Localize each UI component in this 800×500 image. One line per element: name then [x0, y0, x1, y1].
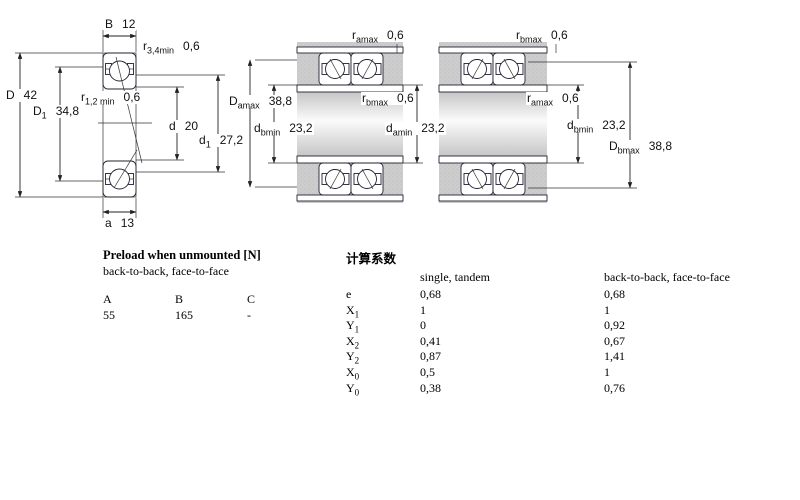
dim-label-rbmax: rbmax0,6: [361, 92, 415, 105]
factor-symbol: e: [346, 287, 351, 301]
factor-pair-value: 1,41: [604, 349, 625, 364]
dim-label-d: d20: [168, 120, 199, 133]
preload-col-header-B: B: [175, 292, 183, 307]
bearing-pair-top: [461, 53, 525, 85]
ball: [468, 60, 487, 79]
ball: [326, 60, 345, 79]
factor-row-X1: X1 1 1: [346, 303, 800, 319]
ball: [500, 170, 519, 189]
dim-label-a: a13: [104, 217, 135, 230]
calculation-factors-table: 计算系数 single, tandem back-to-back, face-t…: [346, 248, 796, 408]
factors-col-header-pair: back-to-back, face-to-face: [604, 270, 730, 285]
factor-symbol: X1: [346, 303, 359, 317]
factor-row-Y0: Y0 0,38 0,76: [346, 381, 800, 397]
factor-pair-value: 0,76: [604, 381, 625, 396]
preload-col-header-A: A: [103, 292, 112, 307]
factor-single-value: 0,41: [420, 334, 441, 349]
preload-value-C: -: [247, 308, 251, 323]
factor-pair-value: 1: [604, 303, 610, 318]
dim-label-d1: d127,2: [198, 134, 244, 147]
factor-single-value: 0,68: [420, 287, 441, 302]
factor-pair-value: 0,92: [604, 318, 625, 333]
factor-single-value: 0: [420, 318, 426, 333]
factor-pair-value: 0,67: [604, 334, 625, 349]
dim-label-D1: D134,8: [32, 105, 80, 118]
dim-label-damin: damin23,2: [385, 122, 446, 135]
factor-row-Y1: Y1 0 0,92: [346, 318, 800, 334]
dim-label-Damax: Damax38,8: [228, 95, 293, 108]
dim-label-dbmin: dbmin23,2: [253, 122, 314, 135]
dim-label-rbmax-top: rbmax0,6: [515, 29, 569, 42]
dim-label-dbmin-right: dbmin23,2: [566, 119, 627, 132]
bearing-datasheet-page: .ext{stroke:#333;stroke-width:0.7;fill:n…: [0, 0, 800, 500]
factors-title: 计算系数: [346, 248, 396, 267]
dim-label-r34min: r3,4min0,6: [142, 40, 201, 53]
factor-row-X0: X0 0,5 1: [346, 365, 800, 381]
ball: [468, 170, 487, 189]
preload-title: Preload when unmounted [N]: [103, 248, 261, 263]
dim-label-ramax: ramax0,6: [526, 92, 580, 105]
ball: [326, 170, 345, 189]
factor-symbol: Y0: [346, 381, 359, 395]
factor-pair-value: 1: [604, 365, 610, 380]
preload-value-B: 165: [175, 308, 193, 323]
dim-label-Dbmax: Dbmax38,8: [608, 140, 673, 153]
dim-label-D: D42: [5, 89, 38, 102]
factor-single-value: 0,38: [420, 381, 441, 396]
factor-row-X2: X2 0,41 0,67: [346, 334, 800, 350]
bearing-pair-bottom: [461, 163, 525, 195]
factors-col-header-single: single, tandem: [420, 270, 490, 285]
dim-label-r12min: r1,2 min0,6: [80, 91, 141, 104]
factor-symbol: Y2: [346, 349, 359, 363]
factor-symbol: Y1: [346, 318, 359, 332]
bearing-pair-bottom: [319, 163, 383, 195]
factor-symbol: X0: [346, 365, 359, 379]
factor-single-value: 0,5: [420, 365, 435, 380]
factor-row-e: e 0,68 0,68: [346, 287, 800, 303]
preload-subtitle: back-to-back, face-to-face: [103, 264, 229, 279]
preload-col-header-C: C: [247, 292, 255, 307]
preload-value-A: 55: [103, 308, 115, 323]
ball: [500, 60, 519, 79]
factor-pair-value: 0,68: [604, 287, 625, 302]
ball: [358, 60, 377, 79]
factor-row-Y2: Y2 0,87 1,41: [346, 349, 800, 365]
ball: [358, 170, 377, 189]
bearing-pair-top: [319, 53, 383, 85]
factor-symbol: X2: [346, 334, 359, 348]
factor-single-value: 0,87: [420, 349, 441, 364]
factor-single-value: 1: [420, 303, 426, 318]
dim-label-B: B12: [104, 18, 136, 31]
dim-label-ramax-top: ramax0,6: [351, 29, 405, 42]
